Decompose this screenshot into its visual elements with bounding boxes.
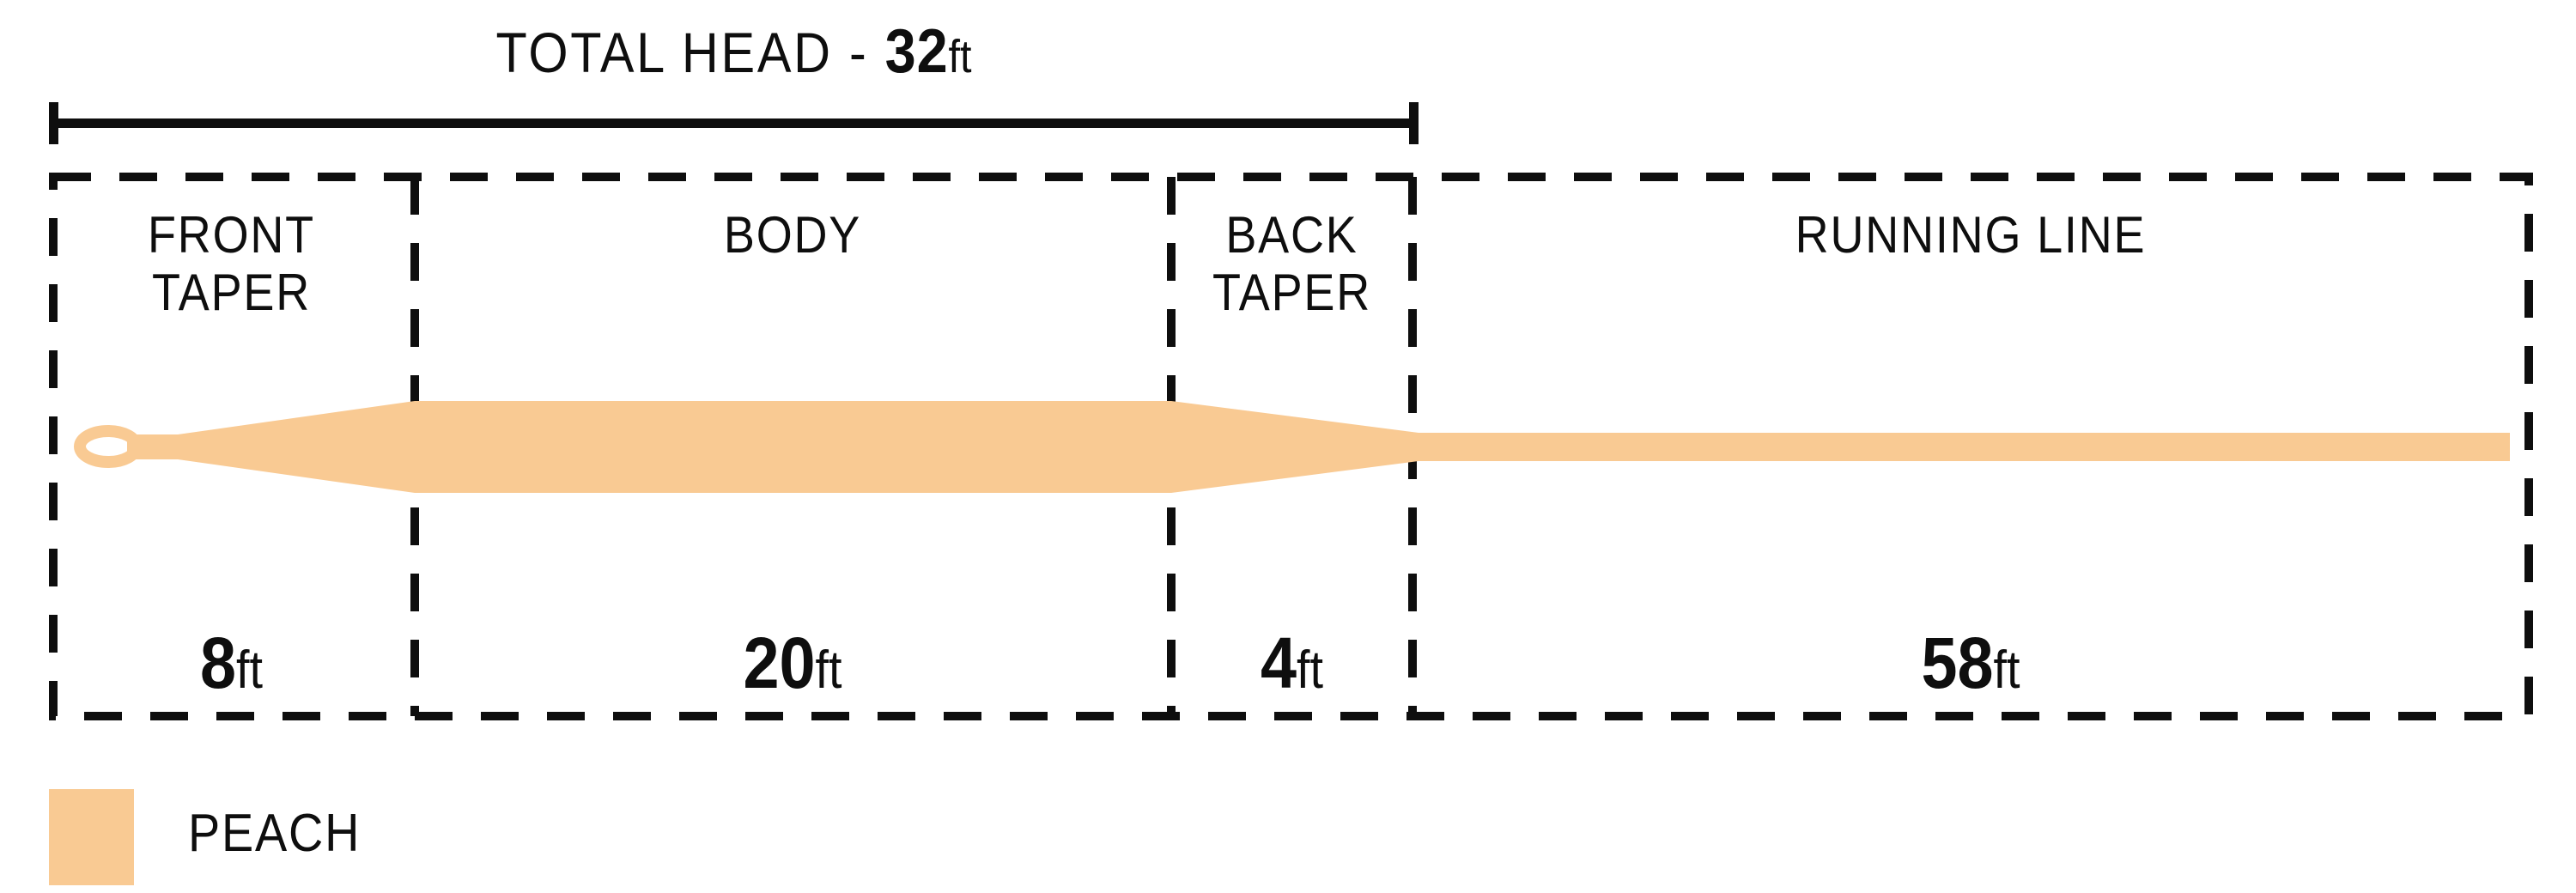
section-label-running-line: RUNNING LINE (1468, 206, 2473, 264)
total-head-unit: ft (949, 31, 972, 82)
section-label-line: RUNNING LINE (1468, 206, 2473, 264)
total-head-label: TOTAL HEAD - (495, 21, 884, 84)
measurement-value: 4 (1261, 623, 1297, 703)
section-label-body: BODY (452, 206, 1133, 264)
measurement-unit: ft (1297, 641, 1323, 700)
measurement-unit: ft (816, 641, 842, 700)
measurement-running-line: 58ft (1468, 620, 2473, 727)
section-label-line: BODY (452, 206, 1133, 264)
total-head-title: TOTAL HEAD - 32ft (118, 19, 1351, 89)
measurement-back-taper: 4ft (1183, 620, 1400, 727)
legend-swatch (49, 789, 134, 885)
measurement-unit: ft (236, 641, 263, 700)
diagram-graphics (0, 0, 2576, 893)
section-label-back-taper: BACK TAPER (1183, 206, 1400, 321)
measurement-value: 8 (200, 623, 236, 703)
section-label-line: TAPER (67, 264, 396, 321)
measurement-unit: ft (1994, 641, 2020, 700)
measurement-value: 20 (743, 623, 815, 703)
section-label-line: BACK (1183, 206, 1400, 264)
measurement-value: 58 (1921, 623, 1993, 703)
fly-line-taper-diagram: TOTAL HEAD - 32ft FRONT TAPER BODY BACK … (0, 0, 2576, 893)
section-label-line: FRONT (67, 206, 396, 264)
measurement-body: 20ft (452, 620, 1133, 727)
measurement-front-taper: 8ft (67, 620, 396, 727)
section-label-front-taper: FRONT TAPER (67, 206, 396, 321)
legend-label: PEACH (188, 789, 361, 877)
total-head-value: 32 (885, 17, 949, 86)
section-label-line: TAPER (1183, 264, 1400, 321)
fly-line-profile (127, 401, 2510, 493)
